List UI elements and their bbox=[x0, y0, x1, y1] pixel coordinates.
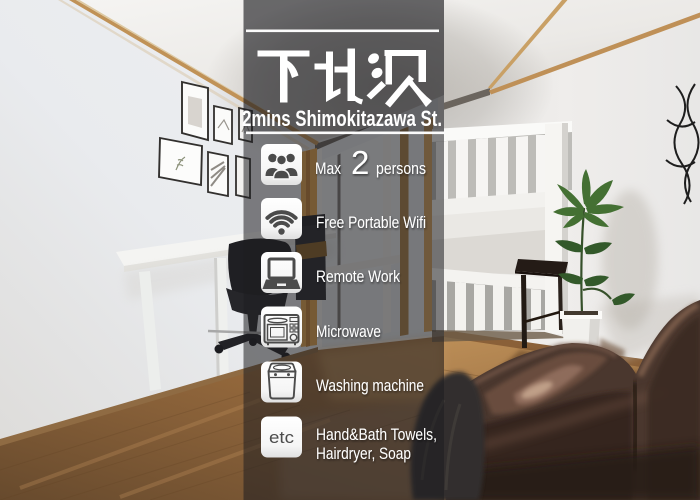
svg-text:2mins Shimokitazawa St.: 2mins Shimokitazawa St. bbox=[242, 106, 442, 131]
svg-text:Washing machine: Washing machine bbox=[316, 376, 424, 395]
svg-text:Microwave: Microwave bbox=[316, 322, 381, 341]
svg-text:Max: Max bbox=[315, 159, 341, 178]
svg-text:2: 2 bbox=[351, 144, 369, 181]
svg-text:persons: persons bbox=[376, 159, 426, 178]
svg-text:Free Portable Wifi: Free Portable Wifi bbox=[316, 213, 426, 232]
svg-text:Remote Work: Remote Work bbox=[316, 267, 400, 286]
svg-text:Hand&Bath Towels,: Hand&Bath Towels, bbox=[316, 425, 437, 444]
svg-text:Hairdryer, Soap: Hairdryer, Soap bbox=[316, 444, 411, 463]
svg-text:etc: etc bbox=[269, 428, 295, 447]
